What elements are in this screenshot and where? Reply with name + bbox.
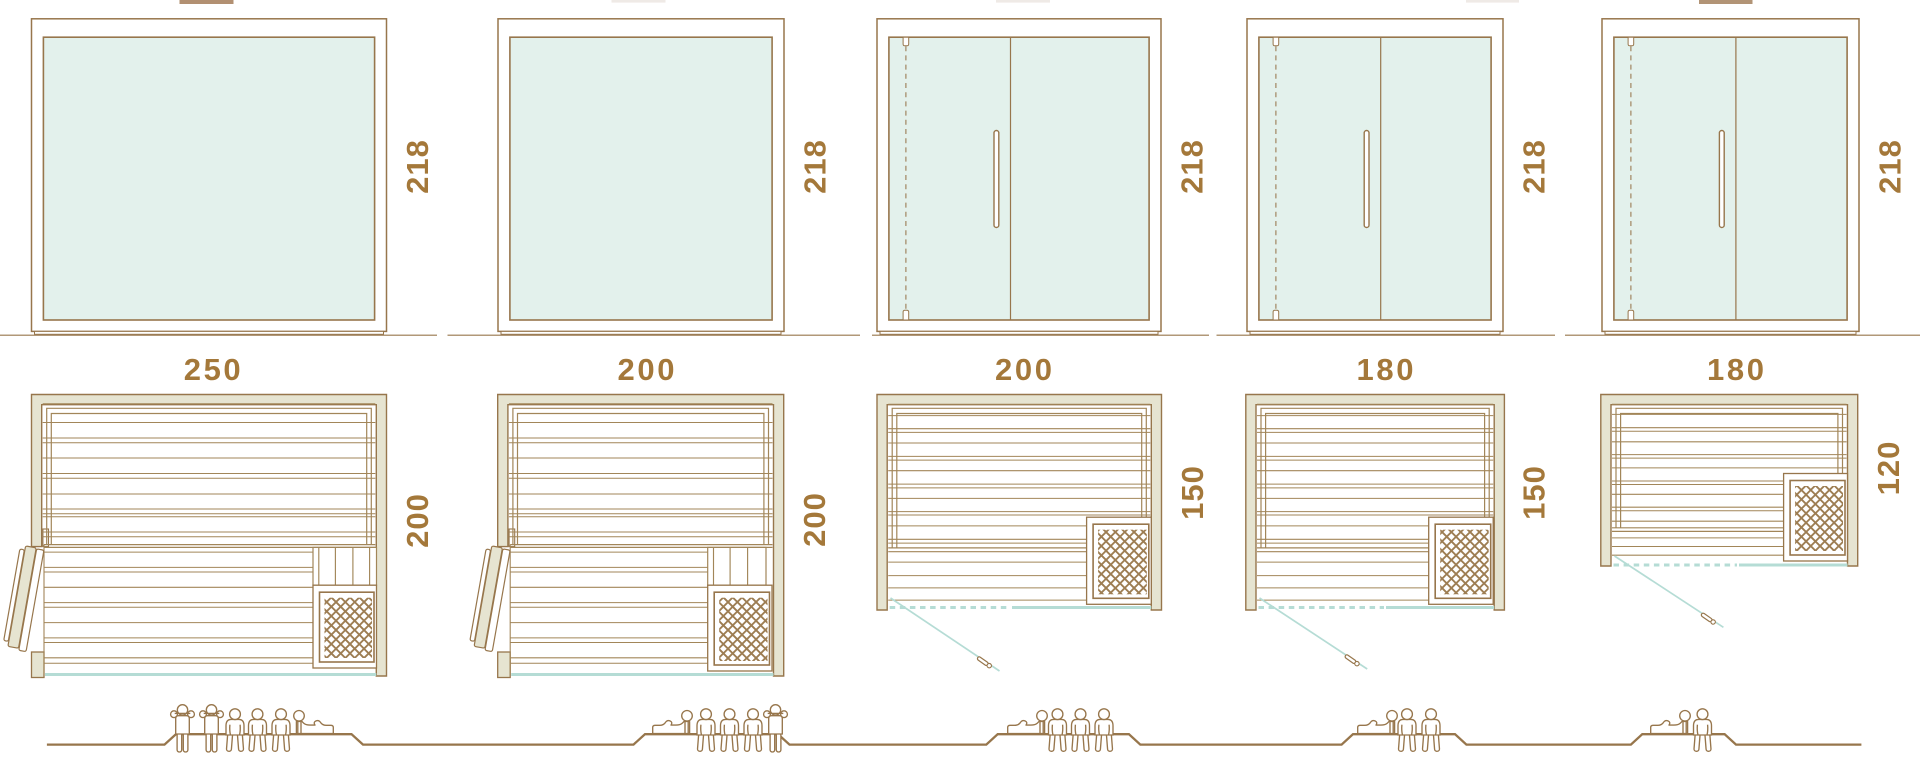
svg-text:218: 218 <box>1175 139 1210 194</box>
svg-text:250: 250 <box>184 352 244 387</box>
svg-text:218: 218 <box>400 139 435 194</box>
svg-text:180: 180 <box>1707 352 1767 387</box>
svg-text:180: 180 <box>1357 352 1417 387</box>
svg-text:120: 120 <box>1871 441 1906 496</box>
svg-text:218: 218 <box>1873 139 1908 194</box>
svg-text:218: 218 <box>798 139 833 194</box>
svg-text:200: 200 <box>618 352 678 387</box>
svg-text:150: 150 <box>1517 465 1552 520</box>
svg-text:200: 200 <box>400 493 435 548</box>
svg-text:200: 200 <box>995 352 1055 387</box>
svg-text:200: 200 <box>797 492 832 547</box>
svg-text:218: 218 <box>1517 139 1552 194</box>
svg-text:150: 150 <box>1175 465 1210 520</box>
